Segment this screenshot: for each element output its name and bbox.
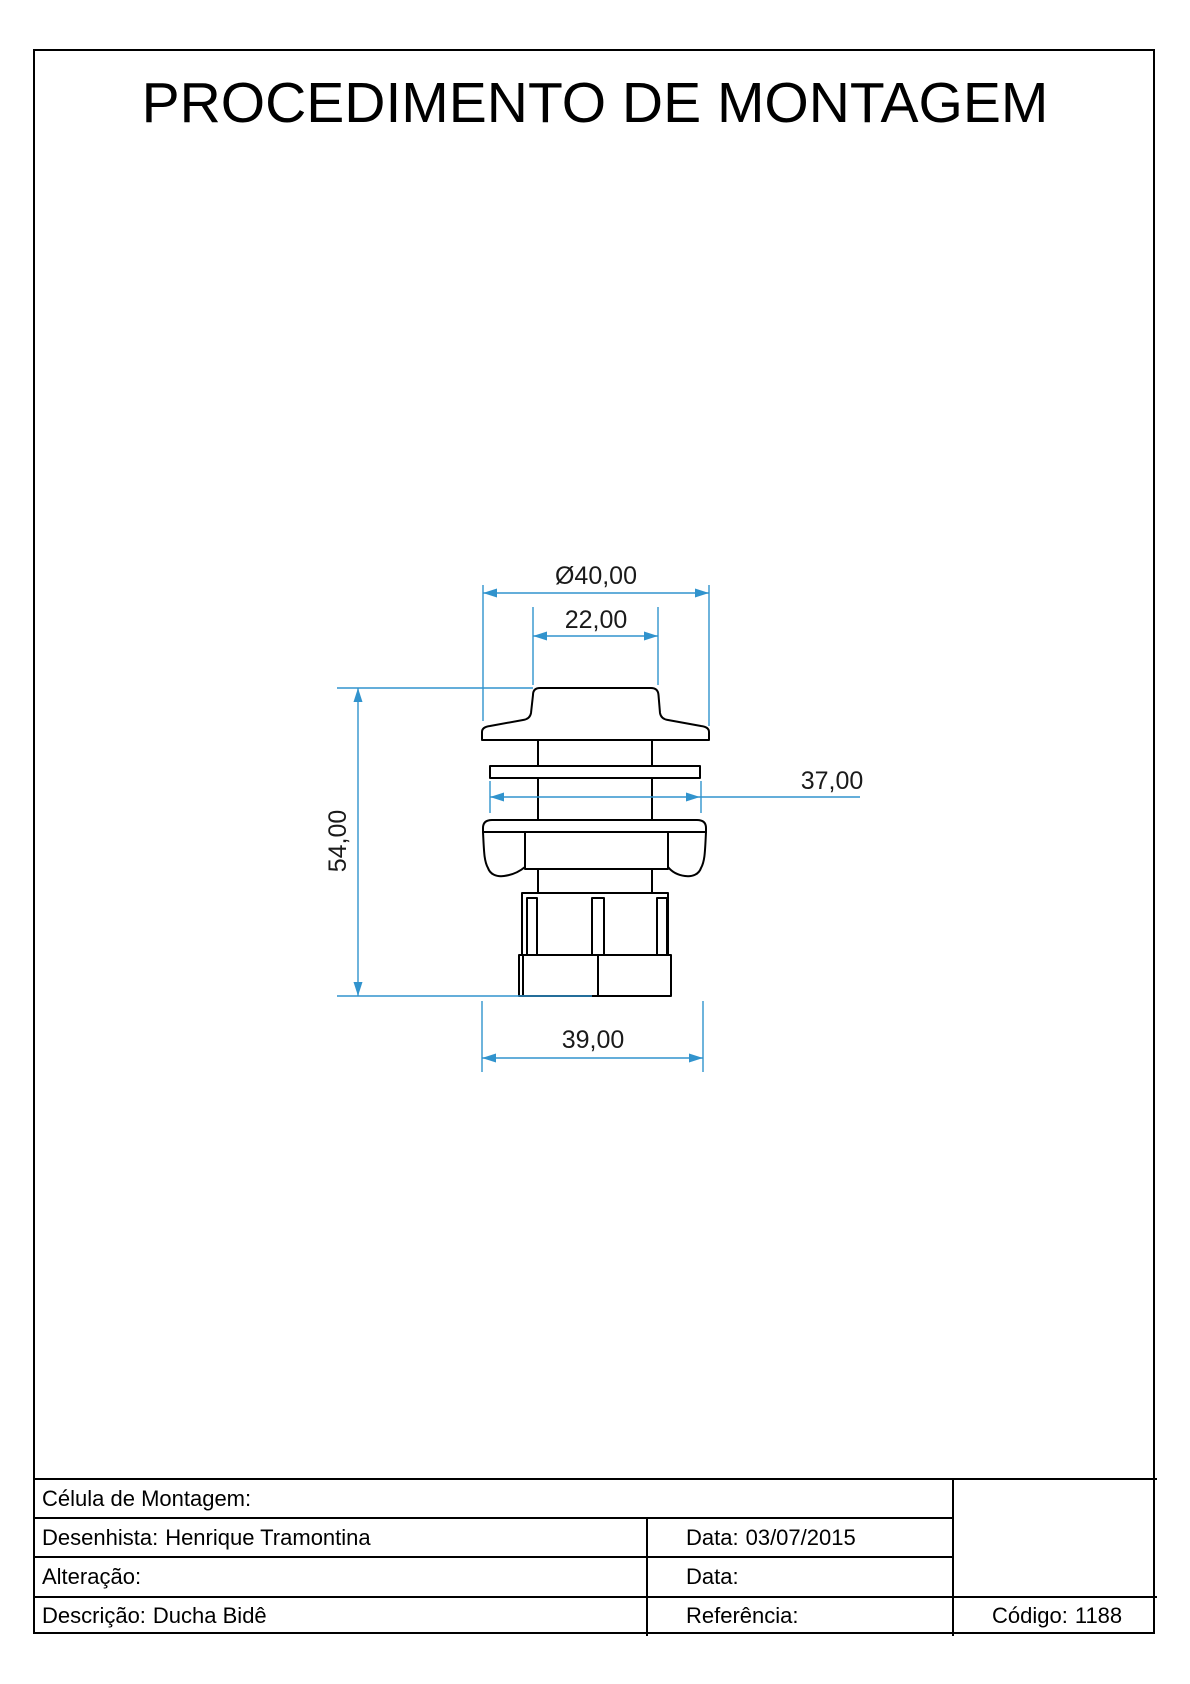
part-wing-left (483, 832, 525, 876)
part-center-block (525, 832, 668, 869)
titleblock-codigo-cell: Código:1188 (992, 1596, 1122, 1634)
descricao-label: Descrição: (42, 1603, 146, 1628)
descricao-value: Ducha Bidê (153, 1603, 267, 1628)
data1-label: Data: (686, 1525, 739, 1550)
titleblock-referencia-cell: Referência: (686, 1596, 799, 1634)
titleblock-data2-cell: Data: (686, 1556, 739, 1596)
dimension-base-width: 39,00 (482, 1001, 703, 1072)
desenhista-value: Henrique Tramontina (165, 1525, 370, 1550)
part-nut-slot-left (527, 898, 537, 955)
part-mounting-plate (483, 820, 706, 832)
dim-label-cap-width: 22,00 (565, 606, 628, 634)
part-wing-right (668, 832, 706, 876)
desenhista-label: Desenhista: (42, 1525, 158, 1550)
titleblock-desenhista-cell: Desenhista:Henrique Tramontina (42, 1517, 371, 1556)
part-nut-upper (522, 893, 668, 955)
table-line-col2 (952, 1478, 954, 1636)
dim-label-washer-width: 37,00 (801, 767, 864, 795)
part-outline (482, 688, 709, 996)
table-line-row2 (33, 1556, 954, 1558)
part-nut-slot-middle (592, 898, 604, 955)
titleblock-data1-cell: Data:03/07/2015 (686, 1517, 856, 1556)
part-washer (490, 766, 700, 778)
dim-label-diameter: Ø40,00 (555, 562, 637, 590)
titleblock-celula-cell: Célula de Montagem: (42, 1478, 251, 1517)
page-title: PROCEDIMENTO DE MONTAGEM (33, 74, 1157, 134)
celula-label: Célula de Montagem: (42, 1486, 251, 1511)
referencia-label: Referência: (686, 1603, 799, 1628)
codigo-value: 1188 (1075, 1603, 1122, 1628)
part-nut-slot-right (657, 898, 667, 955)
data2-label: Data: (686, 1564, 739, 1589)
codigo-label: Código: (992, 1603, 1068, 1628)
dimension-cap-width: 22,00 (533, 606, 658, 685)
titleblock-descricao-cell: Descrição:Ducha Bidê (42, 1596, 267, 1634)
technical-drawing: Ø40,00 22,00 37,00 54,00 (300, 530, 900, 1090)
title-block: Célula de Montagem: Desenhista:Henrique … (33, 1478, 1157, 1636)
part-top-cap-flange (482, 688, 709, 740)
dim-label-total-height: 54,00 (324, 810, 352, 873)
table-line-col1 (646, 1517, 648, 1636)
alteracao-label: Alteração: (42, 1564, 141, 1589)
data1-value: 03/07/2015 (746, 1525, 856, 1550)
part-nut-lower (519, 955, 671, 996)
titleblock-alteracao-cell: Alteração: (42, 1556, 141, 1596)
document-page: PROCEDIMENTO DE MONTAGEM (0, 0, 1190, 1684)
dim-label-base-width: 39,00 (562, 1026, 625, 1054)
